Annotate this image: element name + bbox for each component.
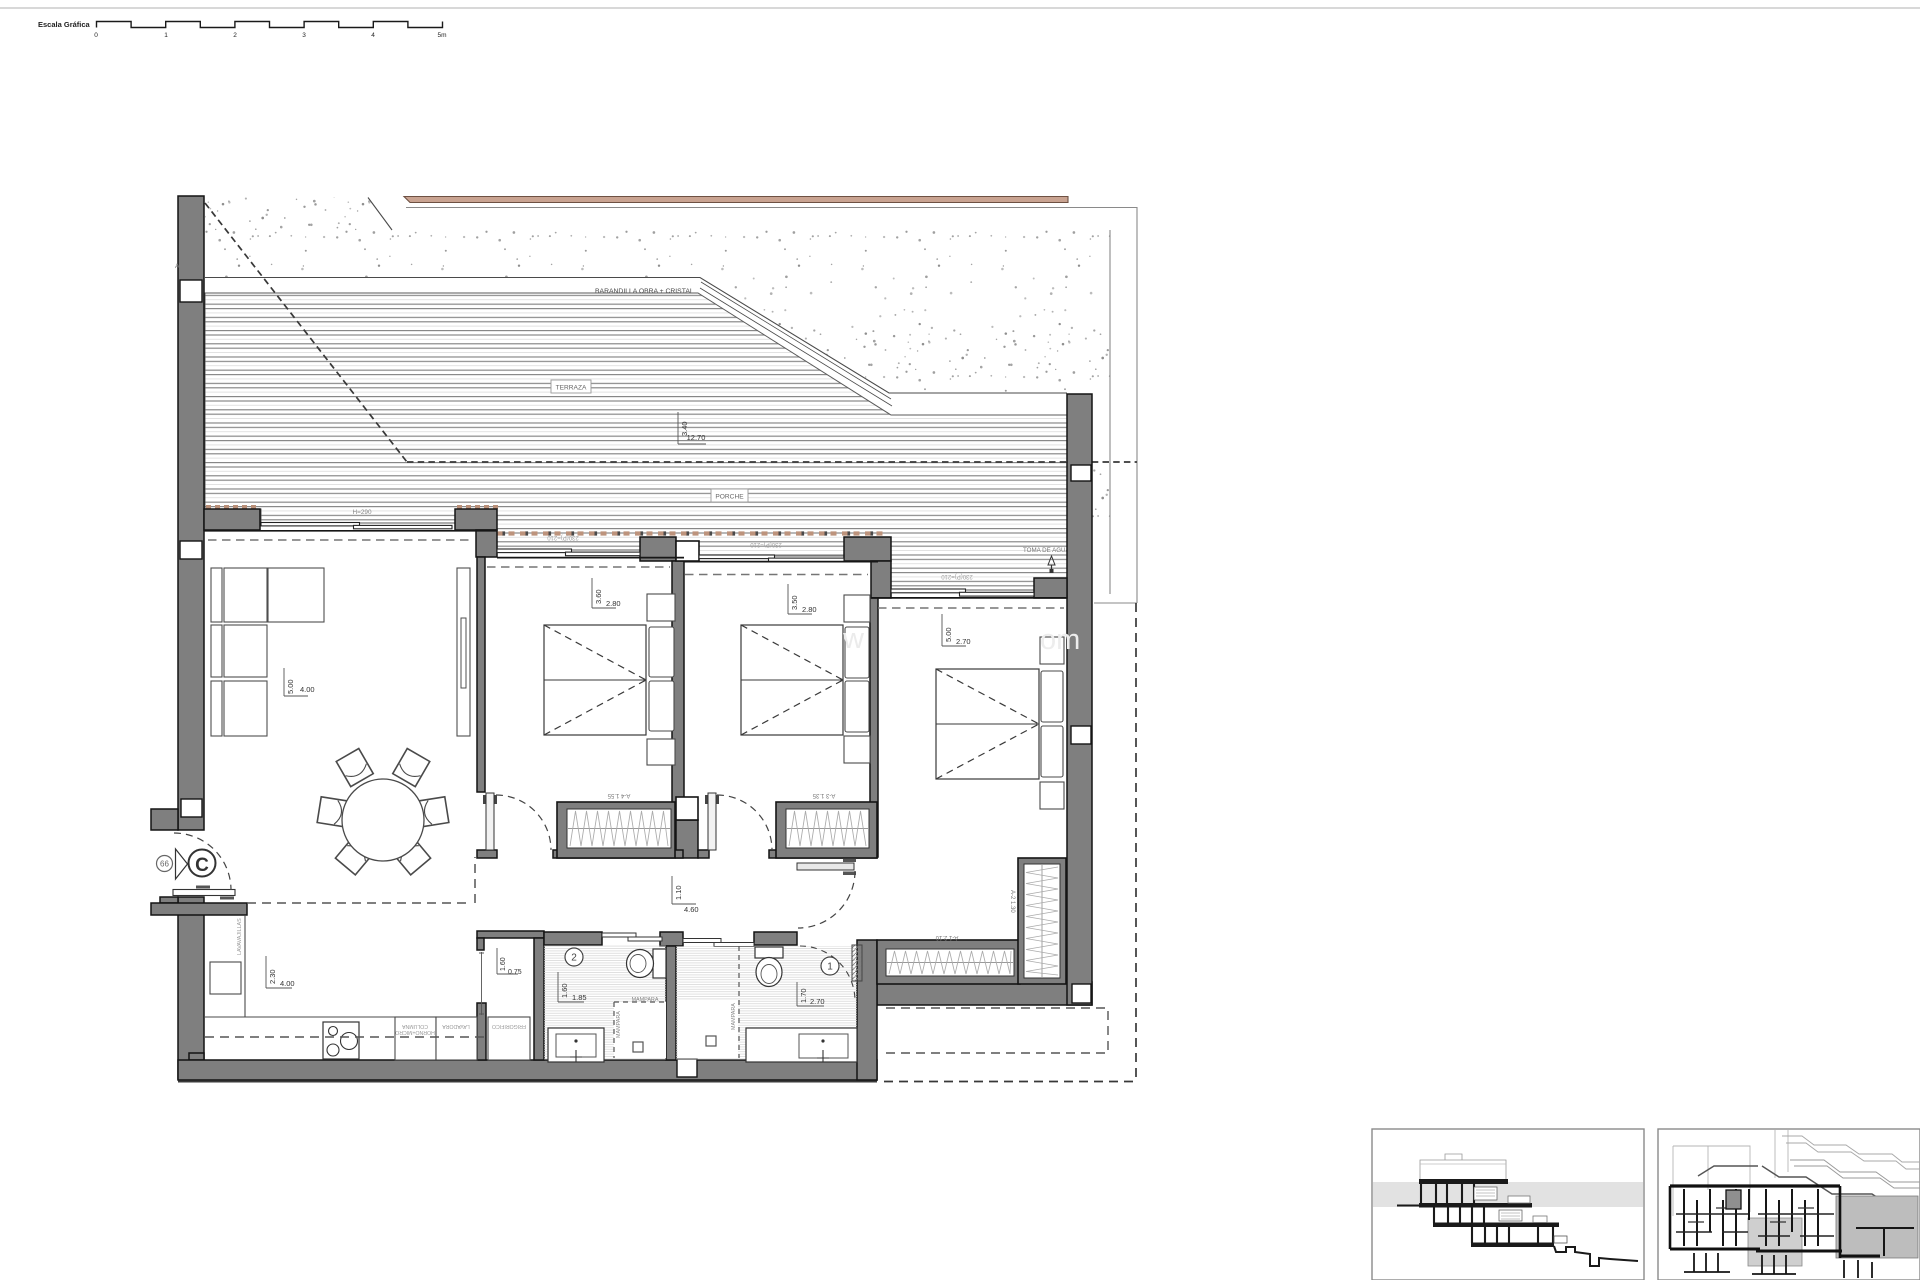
svg-text:4.00: 4.00: [300, 685, 315, 694]
svg-text:A-4 1.55: A-4 1.55: [607, 792, 630, 798]
svg-text:2.70: 2.70: [810, 997, 825, 1006]
svg-text:66: 66: [160, 860, 169, 869]
svg-text:HORNO+MICRO: HORNO+MICRO: [395, 1029, 435, 1035]
svg-text:1.85: 1.85: [572, 993, 587, 1002]
svg-text:1: 1: [164, 32, 168, 39]
svg-text:230(P)=210: 230(P)=210: [547, 534, 579, 540]
svg-text:2.30: 2.30: [268, 969, 277, 984]
svg-text:PORCHE: PORCHE: [715, 494, 744, 501]
svg-text:2.70: 2.70: [956, 637, 971, 646]
svg-text:4: 4: [371, 32, 375, 39]
svg-text:2.80: 2.80: [802, 605, 817, 614]
svg-text:1.10: 1.10: [674, 885, 683, 900]
svg-text:0: 0: [94, 32, 98, 39]
svg-text:1.60: 1.60: [560, 983, 569, 998]
svg-text:FRIGORIFICO: FRIGORIFICO: [492, 1023, 526, 1029]
svg-text:4.60: 4.60: [684, 905, 699, 914]
svg-text:A-1 2.10: A-1 2.10: [935, 934, 958, 940]
svg-text:om: om: [1040, 624, 1080, 656]
svg-text:MAMPARA: MAMPARA: [616, 1011, 622, 1038]
svg-text:1.70: 1.70: [799, 988, 808, 1003]
svg-text:0.75: 0.75: [508, 969, 522, 976]
svg-text:MAMPARA: MAMPARA: [731, 1003, 737, 1030]
svg-text:w: w: [842, 623, 865, 655]
svg-text:2.80: 2.80: [606, 599, 621, 608]
svg-text:H=290: H=290: [352, 509, 371, 516]
svg-text:2: 2: [571, 953, 577, 964]
svg-text:Escala Gráfica: Escala Gráfica: [38, 20, 91, 29]
svg-text:3.50: 3.50: [790, 595, 799, 610]
svg-text:3.60: 3.60: [594, 589, 603, 604]
svg-text:A-2 1.30: A-2 1.30: [1009, 890, 1015, 913]
svg-text:LAVAVAJILLAS: LAVAVAJILLAS: [237, 918, 243, 955]
svg-text:4.00: 4.00: [280, 979, 295, 988]
svg-text:5m: 5m: [437, 32, 446, 39]
svg-text:230(P)=210: 230(P)=210: [941, 573, 973, 579]
svg-text:12.70: 12.70: [687, 433, 706, 442]
svg-text:C: C: [195, 855, 209, 876]
svg-text:1.60: 1.60: [500, 957, 507, 971]
svg-text:TERRAZA: TERRAZA: [556, 385, 587, 392]
svg-text:230(P)=210: 230(P)=210: [750, 541, 782, 547]
svg-text:LAVADORA: LAVADORA: [442, 1023, 470, 1029]
svg-text:1: 1: [827, 962, 833, 973]
svg-text:MAMPARA: MAMPARA: [632, 997, 659, 1003]
svg-text:5.00: 5.00: [286, 679, 295, 694]
svg-text:A: A: [175, 263, 180, 270]
svg-text:5.00: 5.00: [944, 627, 953, 642]
svg-text:TOMA DE AGUA: TOMA DE AGUA: [1023, 547, 1071, 554]
svg-text:3: 3: [302, 32, 306, 39]
svg-text:A-3 1.35: A-3 1.35: [812, 792, 835, 798]
svg-text:COLUMNA: COLUMNA: [401, 1023, 427, 1029]
svg-text:2: 2: [233, 32, 237, 39]
